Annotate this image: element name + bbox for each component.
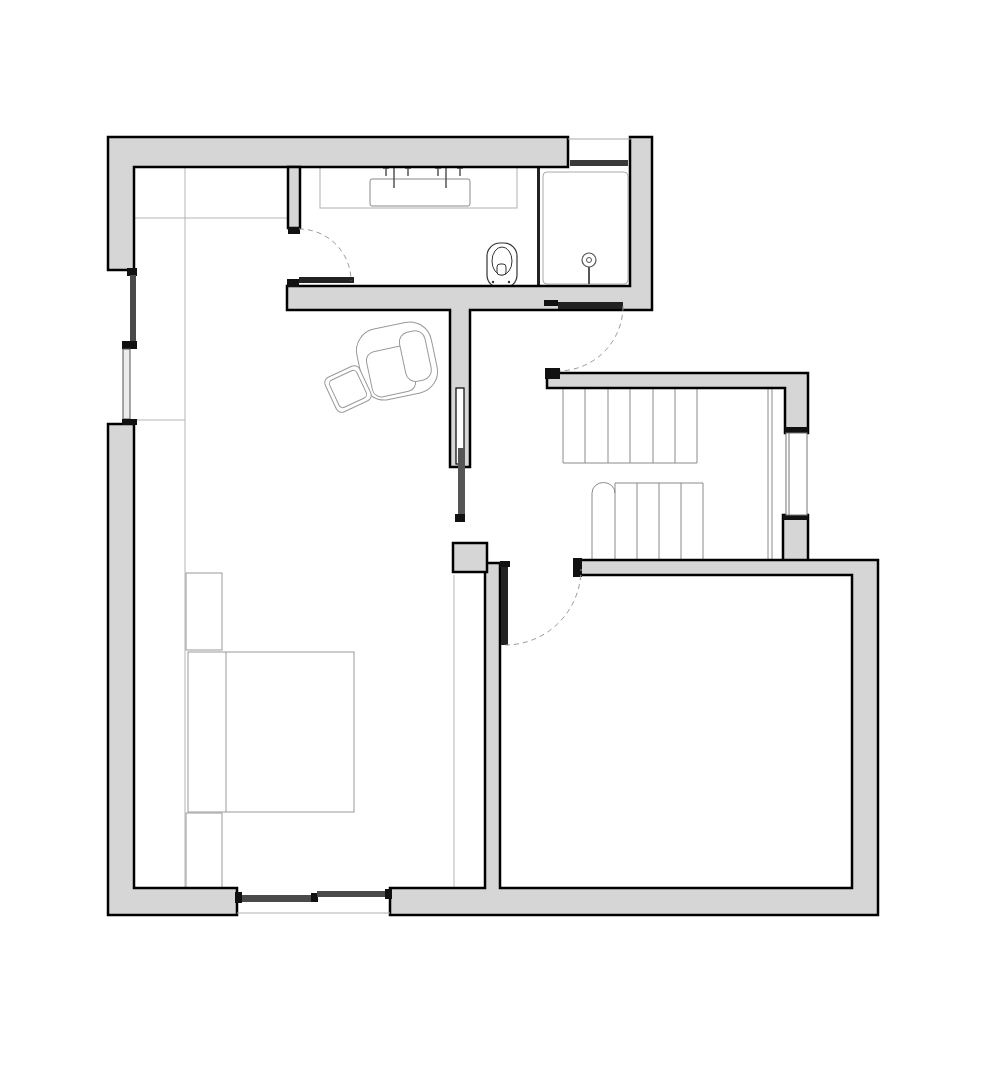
landing-door-leaf <box>501 567 508 645</box>
stair-wall-lower-top-cap <box>783 515 808 520</box>
floor-plan <box>0 0 1000 1079</box>
left-window-cap-mid <box>122 341 137 349</box>
toilet-bolt-left <box>492 281 494 283</box>
shower-glass-panel <box>537 167 540 289</box>
left-window-panel-2 <box>123 349 130 419</box>
sink-basin <box>370 179 470 206</box>
patio-door-panel-a <box>242 895 312 902</box>
pocket-door-end-cap <box>455 514 465 522</box>
stair-upper-treads <box>563 388 697 463</box>
landing-door-hinge-cap <box>500 561 510 567</box>
stair-lower-treads <box>592 483 703 560</box>
patio-door-joint <box>311 893 318 902</box>
layer-stairs <box>563 388 772 560</box>
bed <box>188 652 354 812</box>
layer-fixtures <box>370 167 628 289</box>
shower-tray <box>543 172 628 284</box>
corridor-door-leaf <box>299 277 354 283</box>
left-window-cap-top <box>127 268 137 276</box>
toilet-bolt-right <box>508 281 510 283</box>
wall-divider-block <box>453 543 487 572</box>
bath-door-jamb <box>544 300 558 306</box>
bath-door-leaf <box>558 302 623 309</box>
patio-door-jamb-right <box>385 889 392 899</box>
floor-plan-drawing <box>0 0 1000 1079</box>
wall-stair-right-lower <box>783 515 808 562</box>
stair-bullnose-step <box>592 483 615 494</box>
wall-right-room <box>390 560 878 915</box>
left-window-panel-1 <box>130 275 136 342</box>
landing-door-arc <box>505 569 581 645</box>
corridor-door-jamb <box>287 279 299 287</box>
corridor-door-arc <box>299 229 351 281</box>
layer-furniture <box>134 166 517 888</box>
wall-partition-stub <box>288 167 300 228</box>
pocket-door-leaf <box>458 448 465 516</box>
patio-door-panel-b <box>317 891 386 897</box>
bath-door-arc <box>558 306 623 371</box>
patio-door-jamb-left <box>235 892 242 903</box>
partition-end-cap <box>288 227 300 234</box>
nightstand-bottom <box>186 813 222 888</box>
nightstand-top <box>186 573 222 650</box>
room-wall-left-cap <box>573 558 582 577</box>
toilet-flush <box>497 264 506 275</box>
wall-stair-top <box>547 373 808 433</box>
top-window-bar <box>570 160 628 166</box>
stair-wall-upper-end-cap <box>785 427 808 433</box>
stair-rail <box>768 388 772 560</box>
left-window-cap-bottom <box>122 419 137 425</box>
stair-wall-left-cap <box>545 368 560 379</box>
